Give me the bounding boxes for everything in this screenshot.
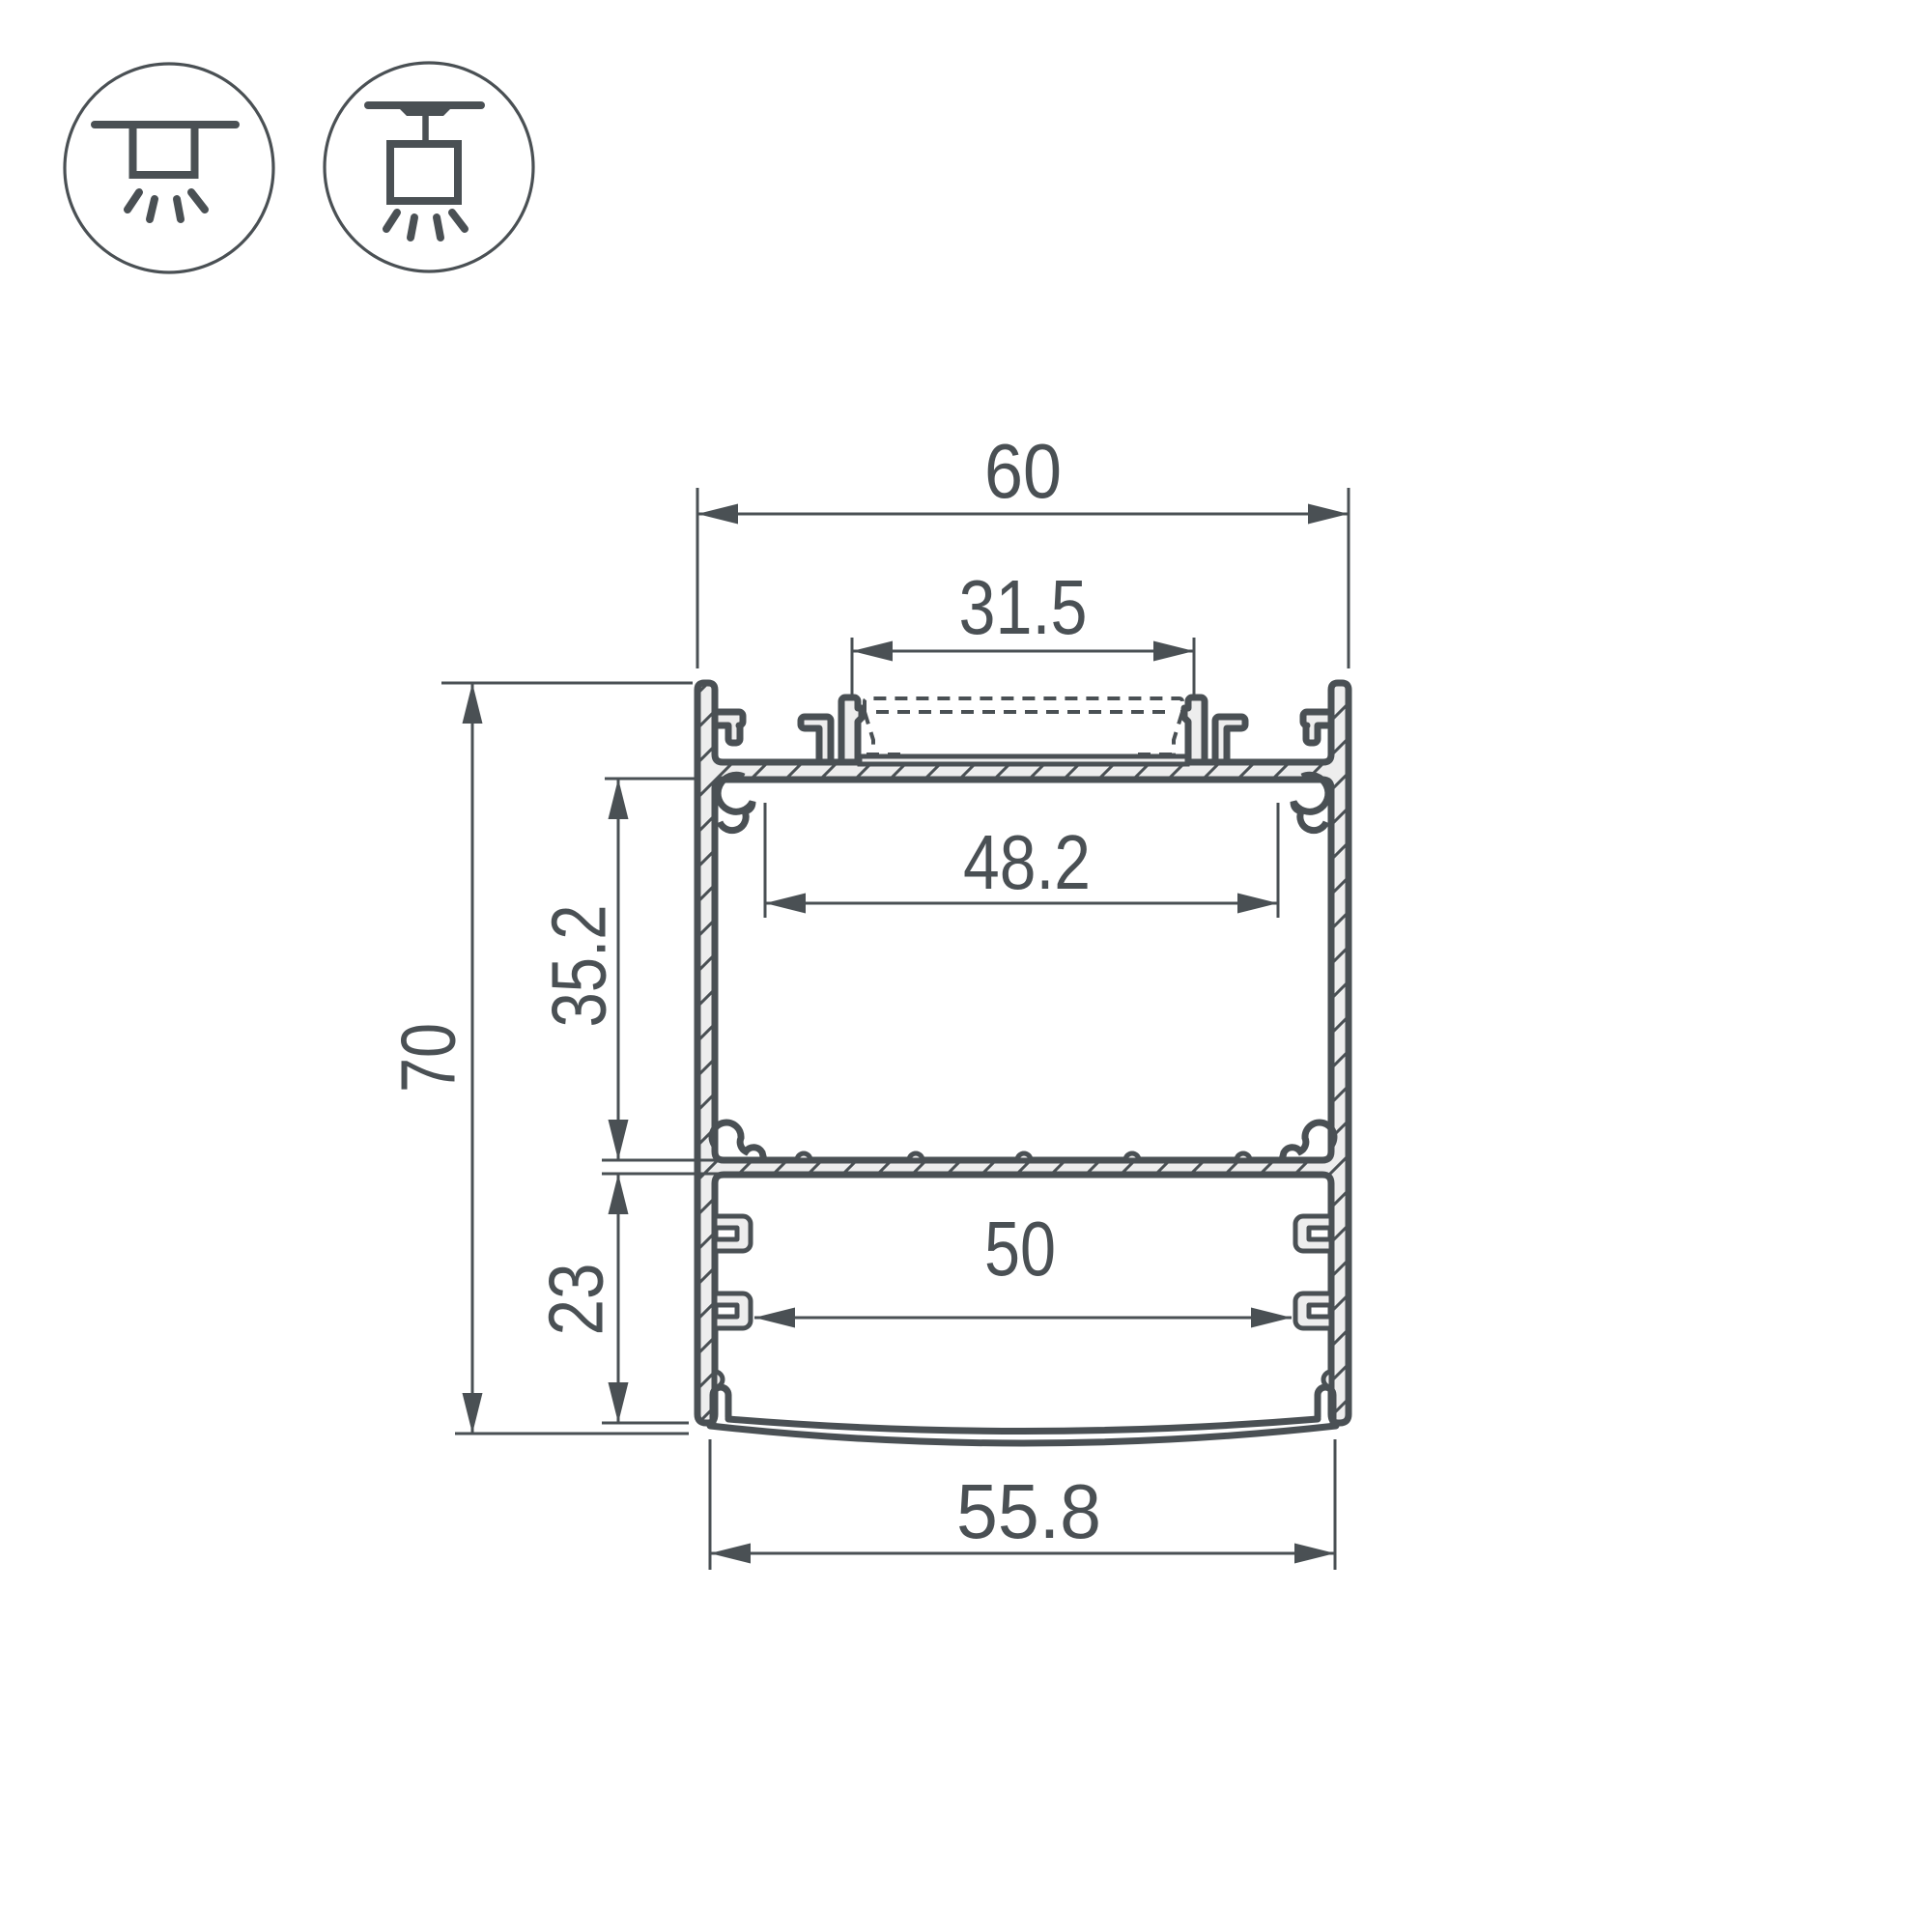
svg-text:35.2: 35.2 <box>536 905 622 1028</box>
svg-text:55.8: 55.8 <box>956 1468 1101 1554</box>
svg-text:60: 60 <box>984 428 1062 514</box>
svg-text:50: 50 <box>984 1206 1056 1292</box>
svg-text:31.5: 31.5 <box>959 564 1088 650</box>
svg-text:70: 70 <box>385 1023 471 1093</box>
svg-text:48.2: 48.2 <box>963 819 1091 905</box>
svg-text:23: 23 <box>533 1264 619 1336</box>
